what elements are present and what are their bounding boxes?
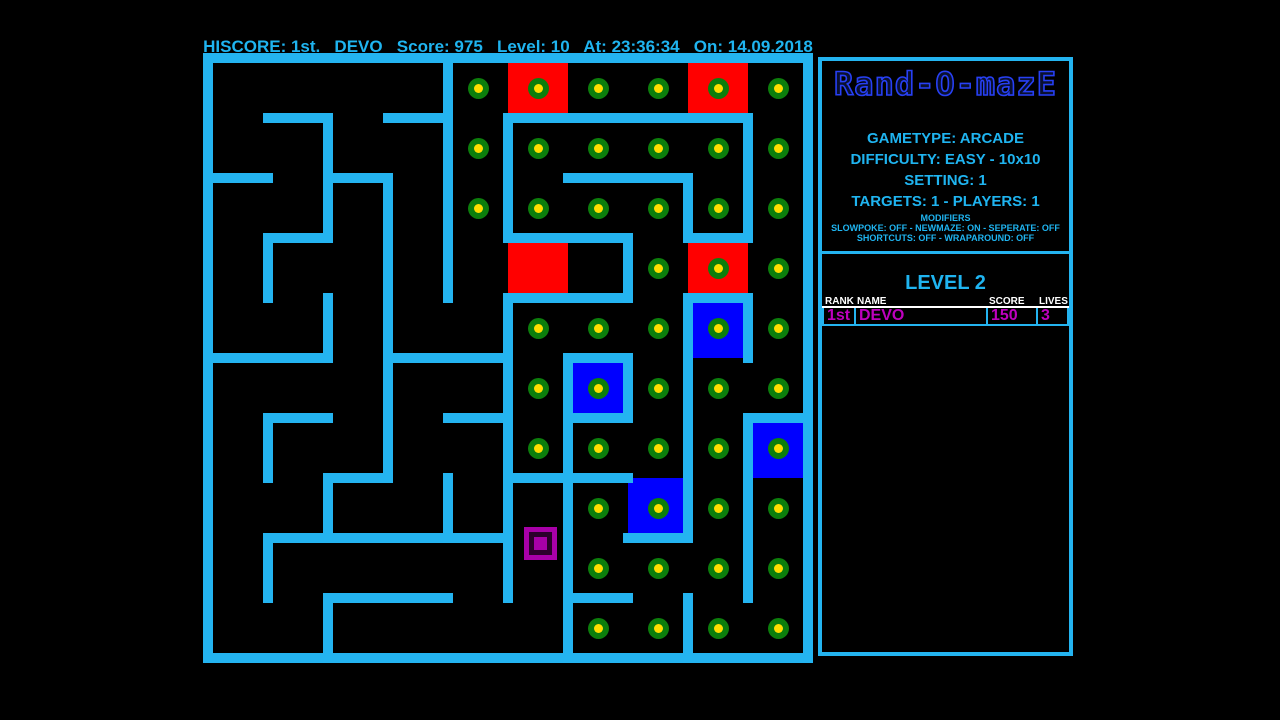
- maze-wall: [563, 593, 633, 603]
- pellet: [588, 438, 609, 459]
- maze-wall: [683, 293, 693, 543]
- pellet-core: [474, 204, 483, 213]
- pellet: [588, 618, 609, 639]
- maze-wall: [443, 473, 453, 543]
- maze-wall: [263, 413, 333, 423]
- pellet: [528, 78, 549, 99]
- pellet: [768, 618, 789, 639]
- maze-wall: [683, 173, 693, 243]
- pellet-core: [654, 264, 663, 273]
- maze-wall: [323, 293, 333, 363]
- pellet-core: [774, 144, 783, 153]
- maze-wall: [803, 53, 813, 663]
- pellet: [708, 78, 729, 99]
- pellet-core: [594, 564, 603, 573]
- game-screen: HISCORE: 1st. DEVO Score: 975 Level: 10 …: [0, 0, 1280, 720]
- maze-wall: [203, 173, 273, 183]
- pellet-core: [714, 324, 723, 333]
- pellet: [648, 198, 669, 219]
- maze-wall: [263, 233, 273, 303]
- pellet: [648, 318, 669, 339]
- pellet: [588, 78, 609, 99]
- rank-cell: 1st: [822, 308, 854, 326]
- maze-wall: [503, 293, 633, 303]
- pellet-core: [594, 384, 603, 393]
- pellet: [708, 378, 729, 399]
- pellet: [768, 318, 789, 339]
- pellet-core: [654, 324, 663, 333]
- pellet-core: [654, 504, 663, 513]
- pellet: [648, 438, 669, 459]
- pellet-core: [594, 204, 603, 213]
- maze-wall: [623, 233, 633, 303]
- modifiers-title: MODIFIERS: [822, 213, 1069, 223]
- maze-wall: [443, 53, 453, 303]
- maze-wall: [203, 53, 813, 63]
- pellet-core: [594, 144, 603, 153]
- modifier-line-2: SHORTCUTS: OFF - WRAPAROUND: OFF: [822, 233, 1069, 243]
- pellet-core: [654, 444, 663, 453]
- maze-wall: [203, 53, 213, 663]
- pellet-core: [594, 84, 603, 93]
- maze-wall: [323, 593, 333, 663]
- maze-wall: [623, 353, 633, 423]
- pellet: [708, 198, 729, 219]
- pellet: [648, 138, 669, 159]
- pellet: [648, 78, 669, 99]
- pellet: [708, 558, 729, 579]
- pellet-core: [594, 624, 603, 633]
- pellet: [528, 318, 549, 339]
- pellet-core: [774, 624, 783, 633]
- pellet: [768, 438, 789, 459]
- pellet-core: [714, 444, 723, 453]
- difficulty-line: DIFFICULTY: EASY - 10x10: [822, 151, 1069, 171]
- maze-board: [203, 53, 813, 663]
- pellet-core: [774, 504, 783, 513]
- pellet-core: [774, 324, 783, 333]
- pellet-core: [534, 84, 543, 93]
- pellet: [708, 438, 729, 459]
- pellet: [588, 198, 609, 219]
- name-cell: DEVO: [854, 308, 986, 326]
- pellet-core: [714, 384, 723, 393]
- targets-line: TARGETS: 1 - PLAYERS: 1: [822, 193, 1069, 213]
- pellet: [468, 138, 489, 159]
- pellet: [588, 558, 609, 579]
- pellet-core: [594, 504, 603, 513]
- pellet-core: [714, 84, 723, 93]
- pellet: [708, 498, 729, 519]
- red-cell: [508, 238, 568, 298]
- pellet: [528, 378, 549, 399]
- player: [524, 527, 557, 560]
- pellet: [768, 258, 789, 279]
- pellet-core: [714, 144, 723, 153]
- pellet: [648, 558, 669, 579]
- pellet-core: [774, 384, 783, 393]
- level-title: LEVEL 2: [822, 272, 1069, 295]
- sidebar-panel: Rand-O-mazE GAMETYPE: ARCADE DIFFICULTY:…: [818, 57, 1073, 656]
- pellet: [528, 198, 549, 219]
- maze-wall: [563, 353, 573, 663]
- pellet-core: [594, 324, 603, 333]
- pellet-core: [774, 84, 783, 93]
- pellet-core: [774, 264, 783, 273]
- pellet-core: [774, 204, 783, 213]
- maze-wall: [743, 413, 753, 603]
- pellet-core: [534, 444, 543, 453]
- pellet: [648, 378, 669, 399]
- maze-wall: [263, 533, 513, 543]
- maze-wall: [563, 173, 693, 183]
- score-table-row: 1st DEVO 150 3: [822, 308, 1069, 326]
- pellet-core: [474, 84, 483, 93]
- pellet-core: [714, 564, 723, 573]
- pellet-core: [654, 204, 663, 213]
- maze-wall: [323, 593, 453, 603]
- pellet: [588, 378, 609, 399]
- score-cell: 150: [986, 308, 1036, 326]
- pellet-core: [534, 204, 543, 213]
- pellet: [768, 558, 789, 579]
- pellet-core: [714, 504, 723, 513]
- maze-wall: [323, 473, 333, 543]
- pellet: [588, 318, 609, 339]
- pellet: [708, 318, 729, 339]
- pellet-core: [774, 444, 783, 453]
- pellet-core: [594, 444, 603, 453]
- pellet: [468, 198, 489, 219]
- pellet: [708, 258, 729, 279]
- pellet: [768, 78, 789, 99]
- pellet-core: [534, 144, 543, 153]
- pellet: [528, 138, 549, 159]
- modifier-line-1: SLOWPOKE: OFF - NEWMAZE: ON - SEPERATE: …: [822, 223, 1069, 233]
- pellet-core: [534, 384, 543, 393]
- pellet: [588, 498, 609, 519]
- pellet-core: [714, 624, 723, 633]
- pellet-core: [654, 624, 663, 633]
- maze-wall: [323, 113, 333, 243]
- maze-wall: [503, 113, 753, 123]
- pellet: [768, 378, 789, 399]
- pellet: [768, 138, 789, 159]
- game-logo: Rand-O-mazE: [822, 65, 1069, 103]
- pellet-core: [654, 564, 663, 573]
- pellet-core: [474, 144, 483, 153]
- pellet: [768, 498, 789, 519]
- pellet-core: [654, 84, 663, 93]
- gametype-line: GAMETYPE: ARCADE: [822, 130, 1069, 150]
- pellet: [588, 138, 609, 159]
- lives-cell: 3: [1036, 308, 1069, 326]
- maze-wall: [683, 593, 693, 663]
- maze-wall: [383, 173, 393, 483]
- maze-wall: [503, 233, 633, 243]
- maze-wall: [203, 353, 333, 363]
- pellet: [468, 78, 489, 99]
- pellet: [648, 258, 669, 279]
- pellet-core: [714, 264, 723, 273]
- pellet: [768, 198, 789, 219]
- pellet-core: [534, 324, 543, 333]
- pellet: [648, 618, 669, 639]
- pellet-core: [774, 564, 783, 573]
- maze-wall: [263, 533, 273, 603]
- maze-wall: [743, 293, 753, 363]
- pellet: [708, 618, 729, 639]
- pellet: [528, 438, 549, 459]
- player-core: [534, 537, 547, 550]
- pellet-core: [714, 204, 723, 213]
- pellet: [648, 498, 669, 519]
- pellet-core: [654, 384, 663, 393]
- maze-wall: [503, 113, 513, 243]
- pellet-core: [654, 144, 663, 153]
- maze-wall: [503, 293, 513, 603]
- sidebar-divider: [822, 251, 1069, 254]
- maze-wall: [203, 653, 813, 663]
- setting-line: SETTING: 1: [822, 172, 1069, 192]
- pellet: [708, 138, 729, 159]
- maze-wall: [743, 113, 753, 243]
- maze-wall: [383, 353, 513, 363]
- maze-wall: [263, 413, 273, 483]
